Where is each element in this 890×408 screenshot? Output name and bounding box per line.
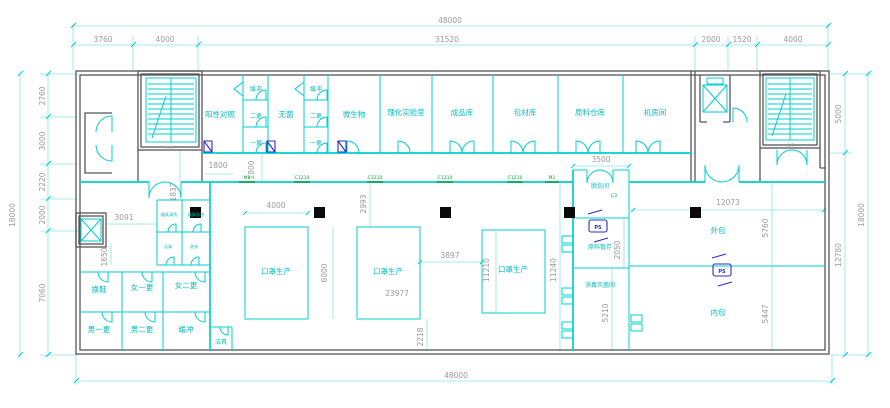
window-tag: C1210 (508, 175, 523, 181)
door-swing-icon (234, 82, 304, 96)
room-label-shoe-change: 换鞋 (92, 284, 107, 294)
column-icon (564, 207, 575, 218)
room-label-sterile: 无菌 (279, 109, 294, 119)
ps-door-icon: PS (712, 254, 732, 286)
dim-4000-b: 4000 (783, 35, 802, 44)
floor-plan-canvas: 48000 3760 4000 31520 2000 1520 4000 480… (0, 0, 890, 408)
dim-23977: 23977 (385, 289, 409, 298)
window-tag: C1210 (438, 175, 453, 181)
dim-2220: 2220 (38, 172, 47, 191)
dim-5000: 5000 (834, 104, 843, 123)
room-label-raw-material-warehouse: 原料仓库 (575, 107, 605, 117)
room-label-packaging-material: 包材库 (514, 107, 537, 117)
room-label-male-second-change: 男二更 (131, 325, 154, 334)
dim-total-width-bottom: 48000 (444, 371, 468, 380)
dim-7060: 7060 (38, 283, 47, 302)
stair-shaft-left (138, 71, 202, 150)
room-label-second-change-2: 二更 (310, 113, 322, 120)
room-label-tool-wash: 器具清洗 (161, 211, 179, 218)
ps-door-icon: PS (588, 210, 608, 242)
door-icon (102, 312, 205, 322)
ps-label: PS (594, 225, 602, 231)
room-label-machine-room: 机房间 (644, 107, 667, 117)
room-label-sterilization: 消毒灭菌间 (585, 281, 615, 289)
room-label-tool-store: 器具存放 (188, 211, 206, 218)
window-tags: M5 C1210 C1210 C1210 C1210 M1 C3 (239, 175, 617, 199)
dim-4000-a: 4000 (155, 35, 174, 44)
double-door-icon (587, 170, 613, 183)
dim-31520: 31520 (435, 35, 459, 44)
room-label-depack: 脱包间 (591, 182, 609, 190)
cad-floorplan-viewport: 48000 3760 4000 31520 2000 1520 4000 480… (0, 0, 890, 408)
room-label-female-second-change: 女二更 (175, 280, 198, 290)
dim-4000-inner: 4000 (266, 201, 285, 210)
dim-3897: 3897 (440, 251, 459, 260)
door-icon (220, 327, 228, 335)
dim-3760: 3760 (93, 35, 112, 44)
column-icon (314, 207, 325, 218)
room-label-inner-packaging: 内包 (711, 307, 726, 317)
room-label-first-change-1: 一更 (250, 140, 262, 147)
room-label-physchem-lab: 理化实验室 (387, 107, 425, 117)
dim-1650: 1650 (100, 247, 109, 266)
dim-3500: 3500 (591, 155, 610, 164)
pass-window-icons (204, 141, 346, 152)
room-label-female-first-change: 女一更 (131, 282, 154, 292)
double-door-icon (511, 141, 535, 153)
stair-arrow-icon (772, 94, 786, 136)
dim-12073: 12073 (716, 198, 740, 207)
dim-5210: 5210 (601, 303, 610, 322)
dim-11210: 11210 (482, 258, 491, 282)
door-icon (733, 108, 747, 122)
porch-door-icons (96, 116, 112, 161)
column-icon (440, 207, 451, 218)
double-door-icon (777, 150, 807, 165)
dim-5447: 5447 (761, 304, 770, 323)
pass-symbols: PS PS (204, 141, 732, 286)
dim-right-18000: 18000 (857, 203, 866, 227)
column-icon (690, 207, 701, 218)
dim-left-18000: 18000 (8, 203, 17, 227)
window-tag: C3 (611, 193, 617, 199)
room-label-mask-production-3: 口罩生产 (498, 264, 528, 274)
west-porch-wall (85, 113, 112, 173)
room-label-microbiology: 微生物 (343, 109, 366, 119)
window-tag: C1210 (368, 175, 383, 181)
dim-1837: 1837 (169, 182, 178, 201)
window-tag: C1210 (295, 175, 310, 181)
room-label-raw-temp-storage: 原料暂存 (588, 243, 612, 251)
ps-label: PS (718, 269, 726, 275)
room-label-second-change-1: 二更 (250, 113, 262, 120)
stair-left-mark: 2 3 (164, 146, 171, 152)
dim-3091: 3091 (114, 213, 133, 222)
dim-5760: 5760 (761, 218, 770, 237)
room-label-mask-production-1: 口罩生产 (261, 266, 291, 276)
double-door-icon (636, 141, 660, 153)
dim-2993: 2993 (359, 194, 368, 213)
room-label-outer-packaging: 外包 (711, 225, 726, 235)
double-door-icon (705, 165, 739, 182)
room-label-male-first-change: 男一更 (88, 325, 111, 334)
elevator-right-icon (703, 78, 727, 112)
room-label-buffer-3: 缓冲 (179, 324, 194, 334)
door-icon (398, 141, 410, 153)
window-tag: M1 (549, 175, 556, 181)
dim-2218: 2218 (416, 327, 425, 346)
dim-6000: 6000 (320, 263, 329, 282)
dim-2000-left: 2000 (38, 205, 47, 224)
dim-1800-h: 1800 (208, 161, 227, 170)
dim-total-width-top: 48000 (438, 16, 462, 25)
room-label-finished-goods: 成品库 (451, 107, 474, 117)
double-door-icon (450, 141, 474, 153)
elevator-left-icon (81, 219, 101, 241)
room-label-buffer-2: 缓冲 (310, 85, 322, 93)
stair-right-mark: 1 7 (787, 143, 794, 149)
lobby-wall (691, 71, 695, 182)
dim-3000: 3000 (38, 131, 47, 150)
room-label-buffer-1: 缓冲 (250, 85, 262, 93)
room-label-mask-production-2: 口罩生产 (373, 266, 403, 276)
door-icon (347, 141, 359, 153)
room-label-positive-control: 阳性对照 (205, 109, 235, 119)
room-label-first-change-2: 一更 (310, 140, 322, 147)
stairs-left: 2 3 (146, 78, 196, 152)
dim-1520: 1520 (732, 35, 751, 44)
dim-11240: 11240 (549, 258, 558, 282)
stairs-right: 1 7 (766, 78, 814, 149)
room-label-util-b: 洗衣 (190, 243, 199, 250)
dim-2050: 2050 (613, 240, 622, 259)
room-label-cleaning-tools: 洁具 (215, 338, 227, 346)
dim-2000-top: 2000 (701, 35, 720, 44)
double-door-icon (576, 141, 600, 153)
dim-2760: 2760 (38, 86, 47, 105)
window-tag: M5 (244, 175, 251, 181)
stair-arrow-icon (152, 96, 166, 138)
dim-12780: 12780 (834, 243, 843, 267)
room-label-util-a: 洁具 (164, 243, 173, 250)
